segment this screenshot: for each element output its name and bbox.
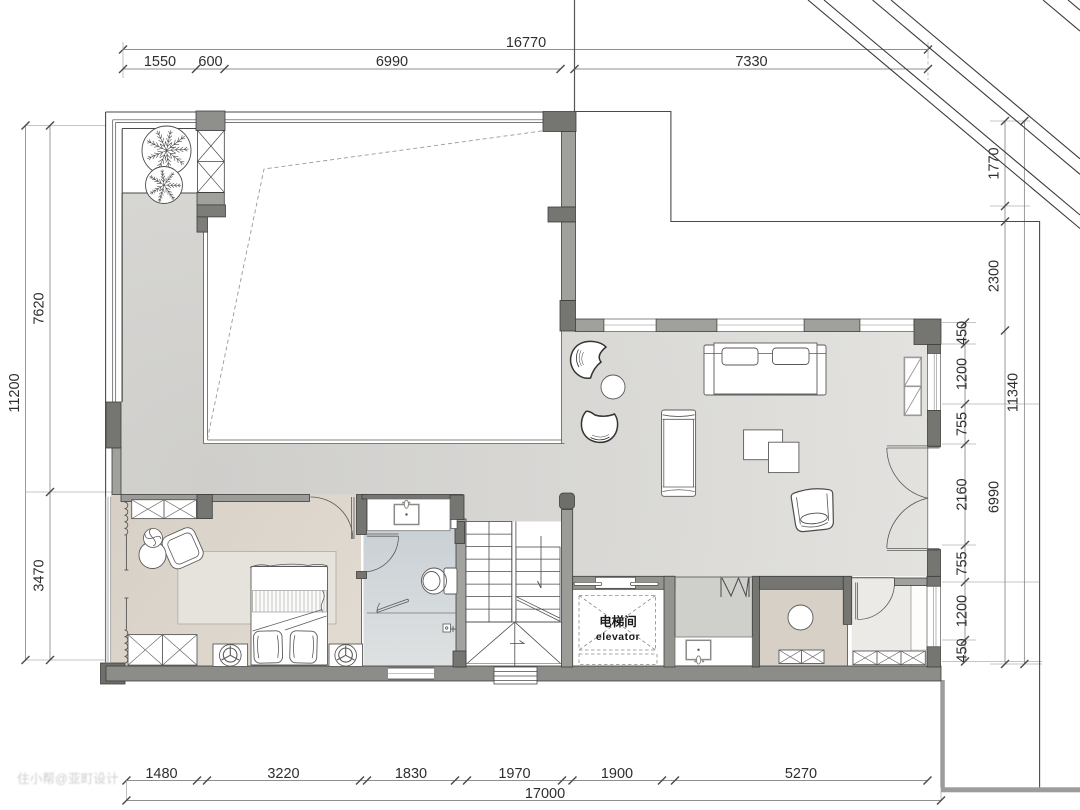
svg-text:7330: 7330 xyxy=(735,54,767,70)
svg-text:7620: 7620 xyxy=(32,292,48,324)
svg-text:3470: 3470 xyxy=(32,559,48,591)
svg-text:2160: 2160 xyxy=(955,478,971,510)
svg-text:6990: 6990 xyxy=(987,481,1003,513)
svg-text:755: 755 xyxy=(955,412,971,436)
svg-text:1200: 1200 xyxy=(955,358,971,390)
svg-text:1970: 1970 xyxy=(498,766,530,782)
svg-text:2300: 2300 xyxy=(987,260,1003,292)
svg-text:600: 600 xyxy=(198,54,222,70)
svg-text:755: 755 xyxy=(955,551,971,575)
svg-text:11200: 11200 xyxy=(7,373,23,412)
svg-text:6990: 6990 xyxy=(376,54,408,70)
svg-text:住小帮@亚町设计: 住小帮@亚町设计 xyxy=(17,771,119,786)
svg-text:1900: 1900 xyxy=(601,766,633,782)
svg-text:11340: 11340 xyxy=(1006,373,1022,412)
svg-text:450: 450 xyxy=(955,321,971,345)
svg-text:1480: 1480 xyxy=(145,766,177,782)
svg-text:16770: 16770 xyxy=(506,35,546,51)
svg-text:5270: 5270 xyxy=(785,766,817,782)
svg-text:450: 450 xyxy=(955,638,971,662)
svg-text:17000: 17000 xyxy=(525,786,565,802)
svg-text:电梯间: 电梯间 xyxy=(599,614,637,629)
svg-text:1830: 1830 xyxy=(395,766,427,782)
svg-text:1200: 1200 xyxy=(955,595,971,627)
svg-text:elevator: elevator xyxy=(596,631,640,643)
svg-text:3220: 3220 xyxy=(267,766,299,782)
svg-text:1550: 1550 xyxy=(144,54,176,70)
